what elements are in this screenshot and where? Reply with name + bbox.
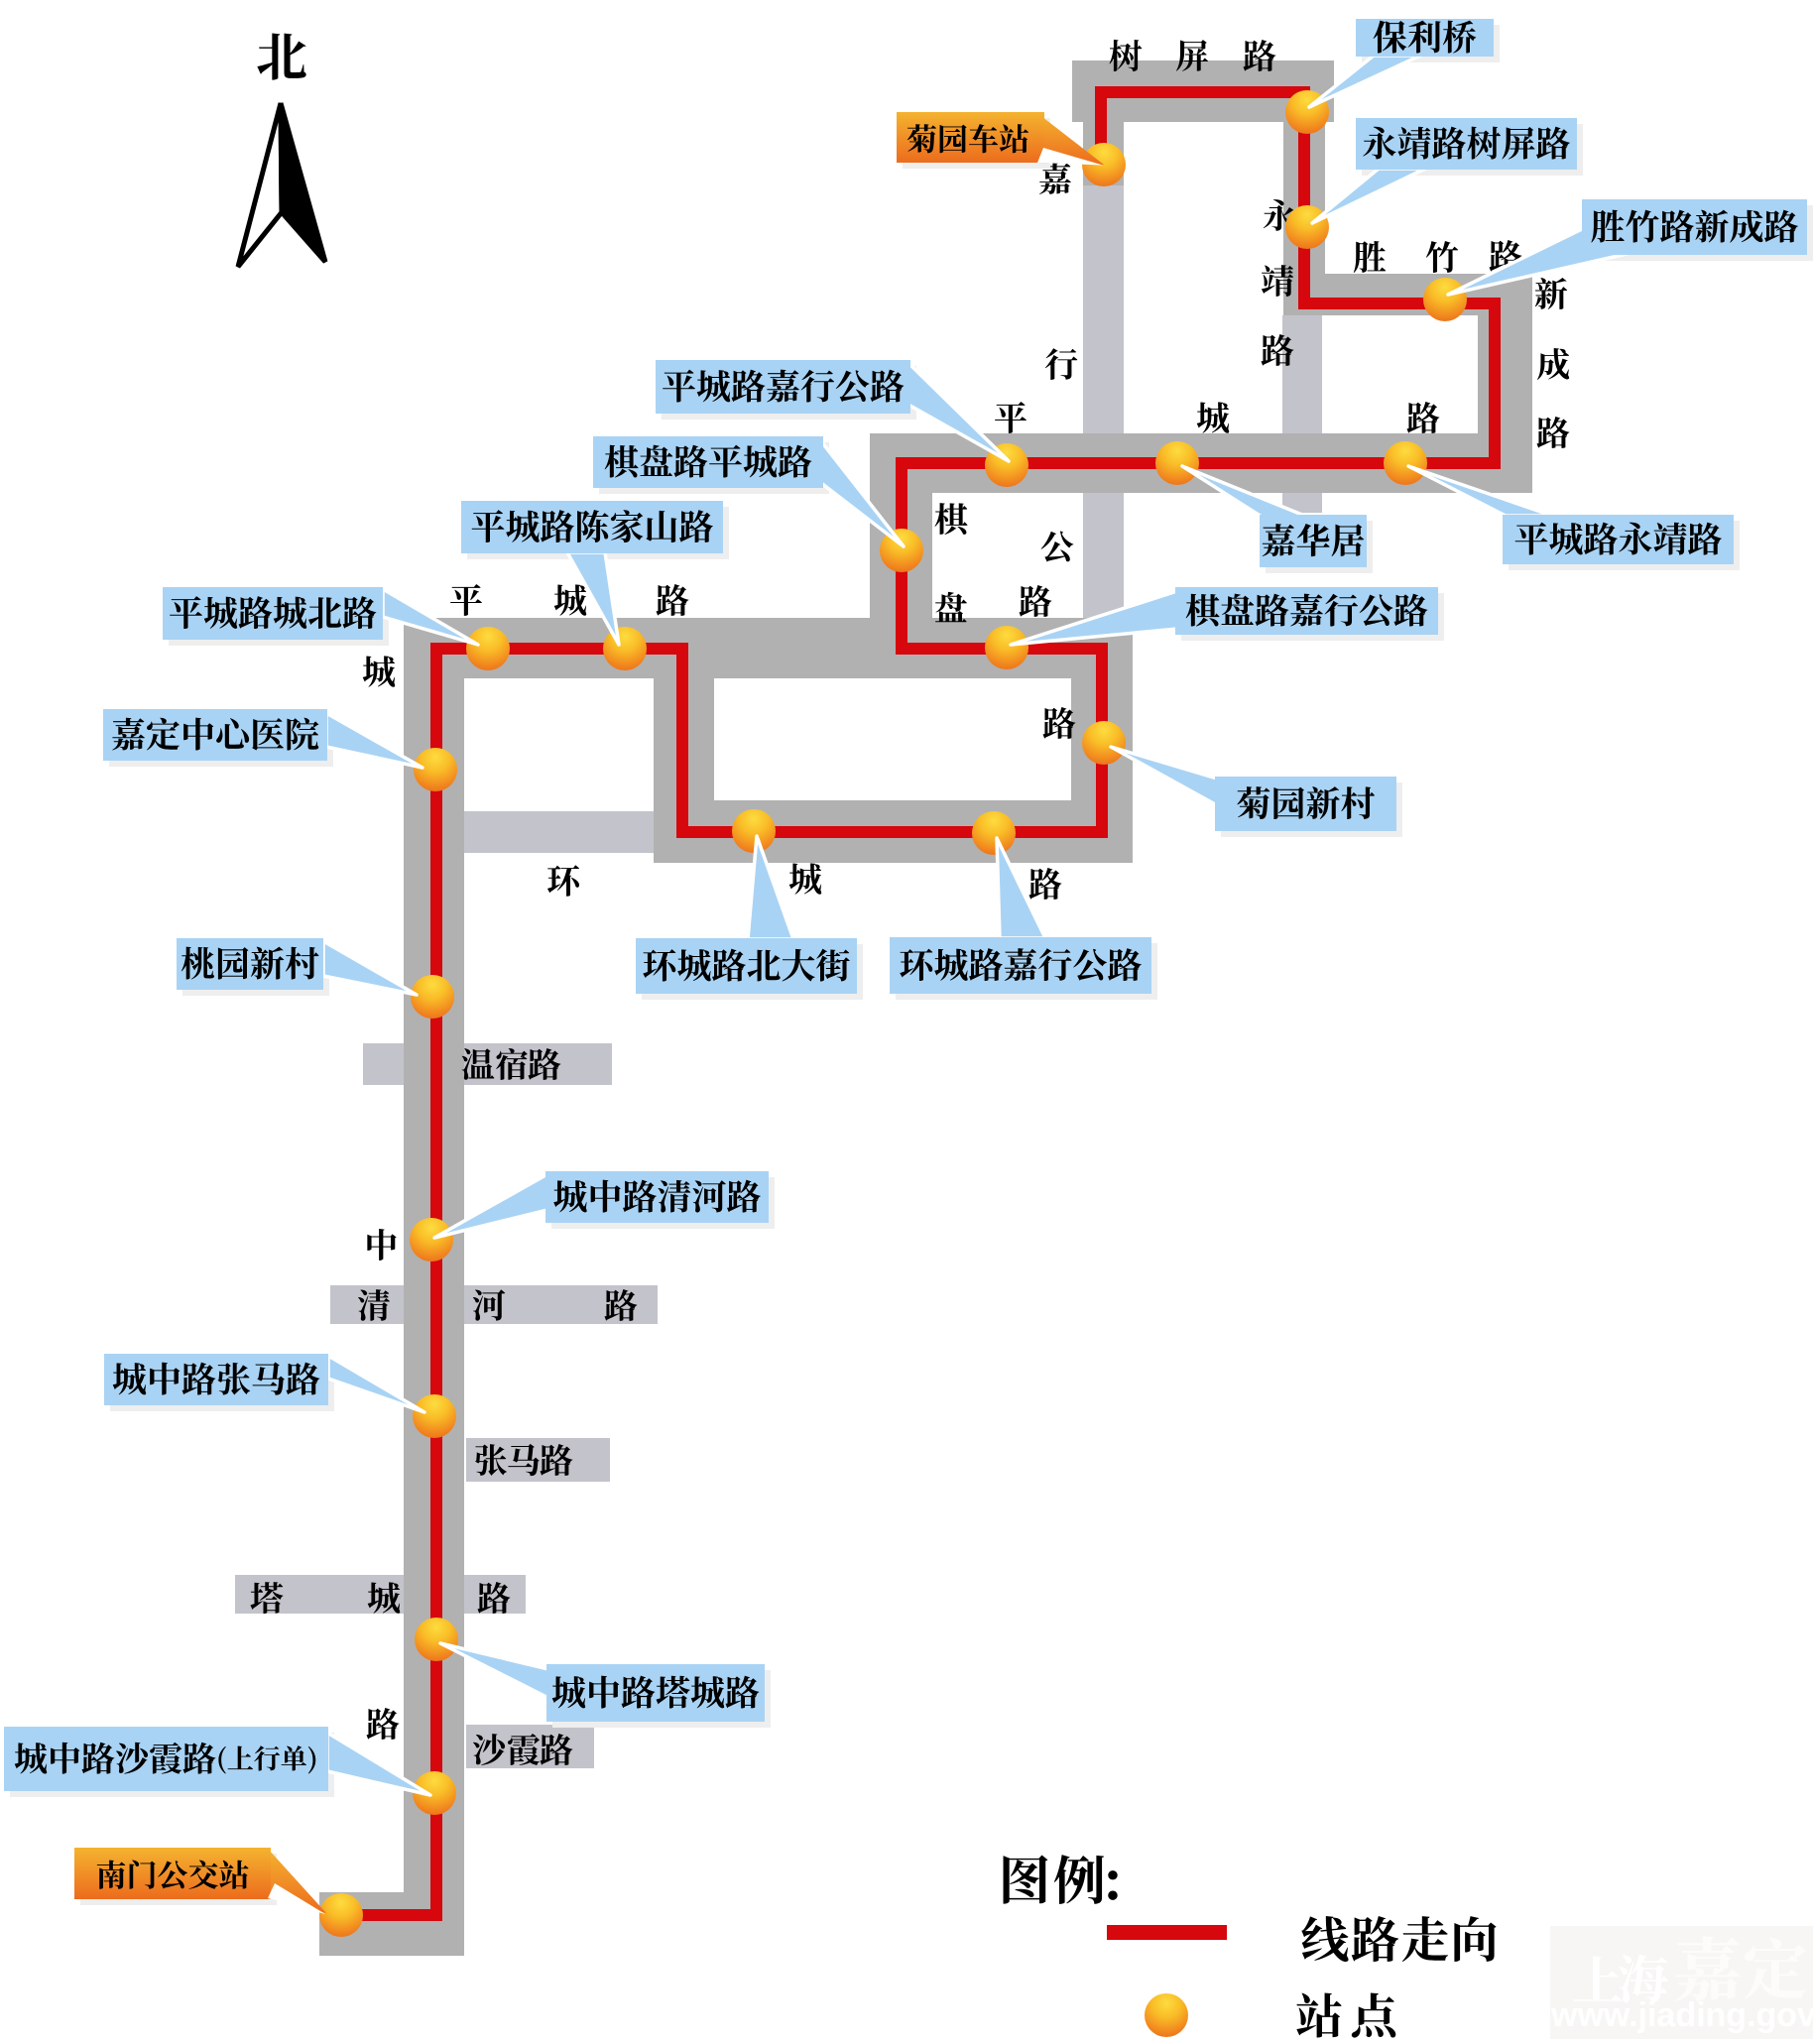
svg-text:www.jiading.gov.cn: www.jiading.gov.cn — [1550, 1996, 1813, 2034]
